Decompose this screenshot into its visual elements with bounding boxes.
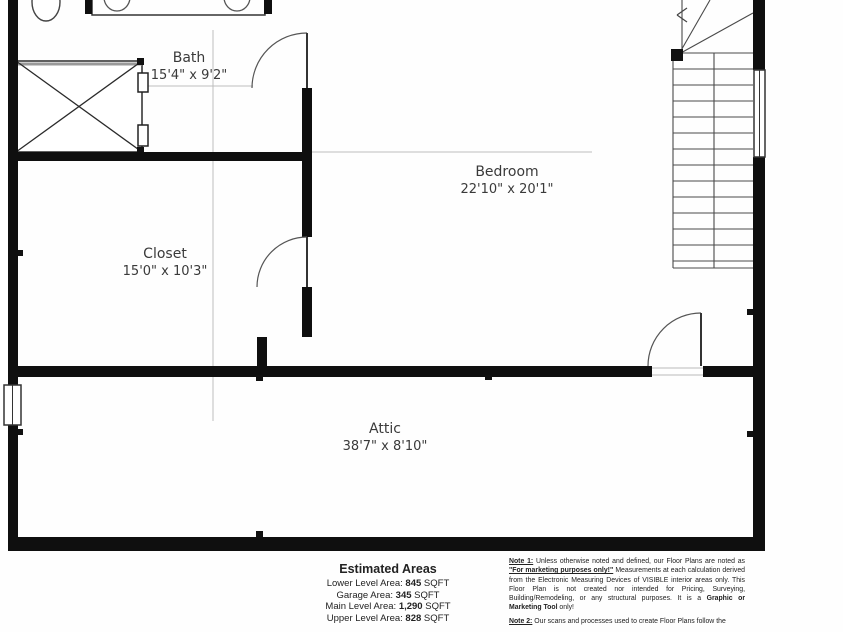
room-dimensions: 15'0" x 10'3" (123, 263, 208, 280)
area-row-main-level: Main Level Area: 1,290 SQFT (298, 601, 478, 613)
room-name: Bath (151, 50, 227, 67)
disclaimer-block: Note 1: Unless otherwise noted and defin… (509, 557, 745, 630)
wall-tick-marks (18, 250, 753, 537)
toilet-icon (32, 0, 60, 21)
staircase (671, 0, 753, 268)
window-right (754, 70, 765, 157)
disclaimer-note-1: Note 1: Unless otherwise noted and defin… (509, 557, 745, 613)
bath-door (252, 33, 307, 88)
estimated-areas-title: Estimated Areas (298, 562, 478, 576)
window-left (4, 385, 21, 425)
room-label-closet: Closet 15'0" x 10'3" (123, 246, 208, 280)
room-label-attic: Attic 38'7" x 8'10" (343, 421, 428, 455)
closet-door (257, 237, 307, 287)
area-row-upper-level: Upper Level Area: 828 SQFT (298, 613, 478, 625)
estimated-areas-block: Estimated Areas Lower Level Area: 845 SQ… (298, 562, 478, 624)
room-label-bedroom: Bedroom 22'10" x 20'1" (461, 164, 554, 198)
room-label-bath: Bath 15'4" x 9'2" (151, 50, 227, 84)
room-dimensions: 38'7" x 8'10" (343, 438, 428, 455)
floor-plan-drawing (0, 0, 843, 632)
disclaimer-note-2: Note 2: Our scans and processes used to … (509, 617, 745, 626)
floor-plan-page: Bath 15'4" x 9'2" Bedroom 22'10" x 20'1"… (0, 0, 843, 632)
attic-door (648, 313, 703, 375)
room-dimensions: 15'4" x 9'2" (151, 67, 227, 84)
vanity-counter (92, 0, 265, 15)
area-row-lower-level: Lower Level Area: 845 SQFT (298, 578, 478, 590)
sink-icon (224, 0, 250, 11)
bathtub (16, 58, 148, 153)
room-name: Closet (123, 246, 208, 263)
ceiling-break-lines (148, 30, 592, 421)
room-dimensions: 22'10" x 20'1" (461, 181, 554, 198)
area-row-garage: Garage Area: 345 SQFT (298, 590, 478, 602)
room-name: Bedroom (461, 164, 554, 181)
sink-icon (104, 0, 130, 11)
room-name: Attic (343, 421, 428, 438)
